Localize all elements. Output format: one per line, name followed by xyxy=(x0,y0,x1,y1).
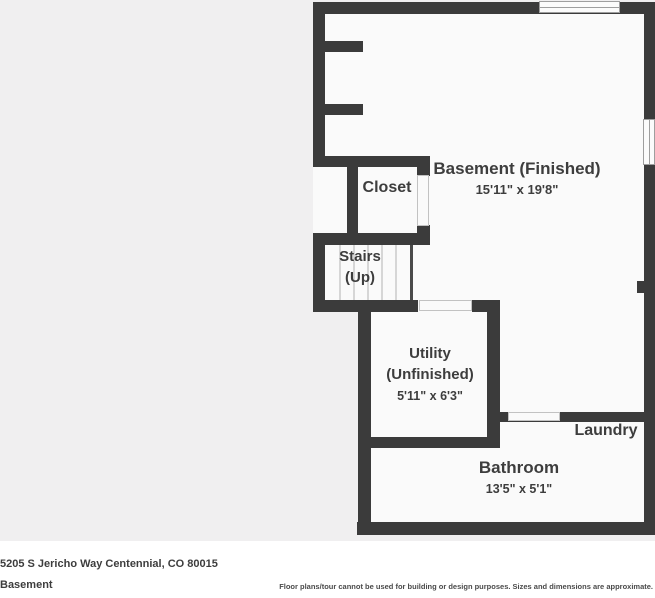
utility-door-opening xyxy=(419,300,472,311)
disclaimer-text: Floor plans/tour cannot be used for buil… xyxy=(279,582,653,591)
wall-exterior-left-upper xyxy=(313,2,325,166)
floorplan-drawing: Basement (Finished) 15'11" x 19'8" Close… xyxy=(0,0,655,541)
stairs-railing-line xyxy=(410,245,413,300)
bathroom-room-label: Bathroom xyxy=(430,457,608,478)
utility-label-line1: Utility xyxy=(370,343,490,364)
wall-exterior-bottom xyxy=(357,522,655,535)
floorplan-screenshot: Basement (Finished) 15'11" x 19'8" Close… xyxy=(0,0,655,598)
wall-niche-stub-lower xyxy=(325,104,363,115)
footer-bar: 5205 S Jericho Way Centennial, CO 80015 … xyxy=(0,541,655,598)
wall-utility-bottom xyxy=(358,437,500,448)
stairs-label-line2: (Up) xyxy=(320,267,400,288)
bathroom-room-dimensions: 13'5" x 5'1" xyxy=(430,481,608,497)
floor-level-label: Basement xyxy=(0,579,53,591)
closet-room-label: Closet xyxy=(352,179,422,197)
wall-pier-right xyxy=(637,281,645,293)
utility-room-label: Utility (Unfinished) xyxy=(370,343,490,385)
wall-exterior-right xyxy=(644,2,655,535)
basement-room-dimensions: 15'11" x 19'8" xyxy=(412,181,622,198)
stairs-label-line1: Stairs xyxy=(320,246,400,267)
basement-room-label: Basement (Finished) xyxy=(412,158,622,179)
wall-stairs-top xyxy=(313,233,430,245)
window-pane-line xyxy=(649,120,650,164)
window-right xyxy=(643,119,655,165)
property-address: 5205 S Jericho Way Centennial, CO 80015 xyxy=(0,558,218,570)
utility-label-line2: (Unfinished) xyxy=(370,364,490,385)
laundry-door-opening xyxy=(508,412,560,421)
laundry-room-label: Laundry xyxy=(566,422,646,440)
utility-room-dimensions: 5'11" x 6'3" xyxy=(370,388,490,404)
window-top xyxy=(539,1,620,13)
floor-basement-main xyxy=(313,2,655,170)
wall-utility-bathroom-left xyxy=(358,302,371,535)
window-pane-line xyxy=(540,7,619,8)
floor-corridor xyxy=(488,302,648,422)
stairs-label: Stairs (Up) xyxy=(320,246,400,288)
wall-niche-stub-upper xyxy=(325,41,363,52)
wall-closet-left xyxy=(347,156,358,245)
